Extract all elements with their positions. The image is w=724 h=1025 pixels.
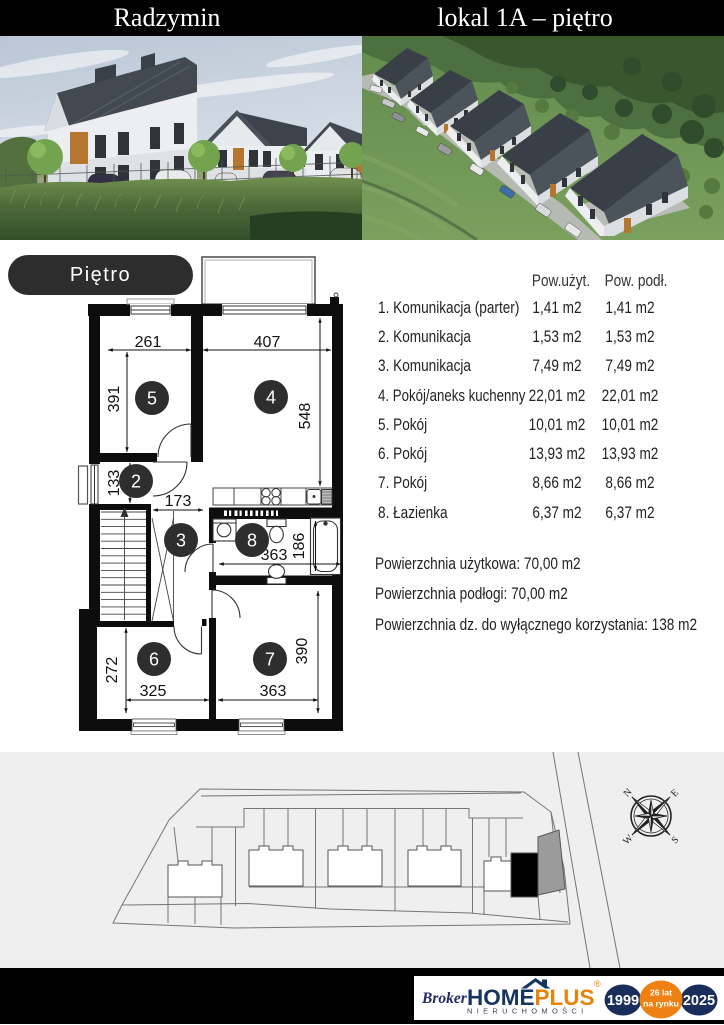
svg-text:1999: 1999	[607, 993, 639, 1009]
svg-text:407: 407	[254, 334, 281, 351]
svg-text:261: 261	[135, 334, 162, 351]
svg-text:3: 3	[176, 531, 186, 551]
svg-text:325: 325	[140, 683, 167, 700]
svg-text:186: 186	[291, 533, 308, 560]
svg-text:®: ®	[594, 979, 601, 989]
svg-text:6: 6	[149, 650, 159, 670]
svg-text:2025: 2025	[683, 993, 715, 1009]
svg-text:272: 272	[104, 657, 121, 684]
svg-text:391: 391	[106, 386, 123, 413]
svg-text:Broker: Broker	[421, 990, 468, 1007]
svg-text:26 lat: 26 lat	[650, 988, 672, 998]
svg-text:NIERUCHOMOŚCI: NIERUCHOMOŚCI	[467, 1007, 588, 1016]
svg-text:173: 173	[165, 493, 192, 510]
svg-text:7: 7	[265, 650, 275, 670]
svg-text:548: 548	[297, 403, 314, 430]
svg-text:363: 363	[260, 683, 287, 700]
svg-text:4: 4	[266, 388, 276, 408]
svg-text:na rynku: na rynku	[643, 999, 679, 1009]
svg-text:8: 8	[247, 531, 257, 551]
svg-text:390: 390	[294, 638, 311, 665]
svg-text:5: 5	[147, 389, 157, 409]
svg-text:2: 2	[131, 472, 141, 492]
